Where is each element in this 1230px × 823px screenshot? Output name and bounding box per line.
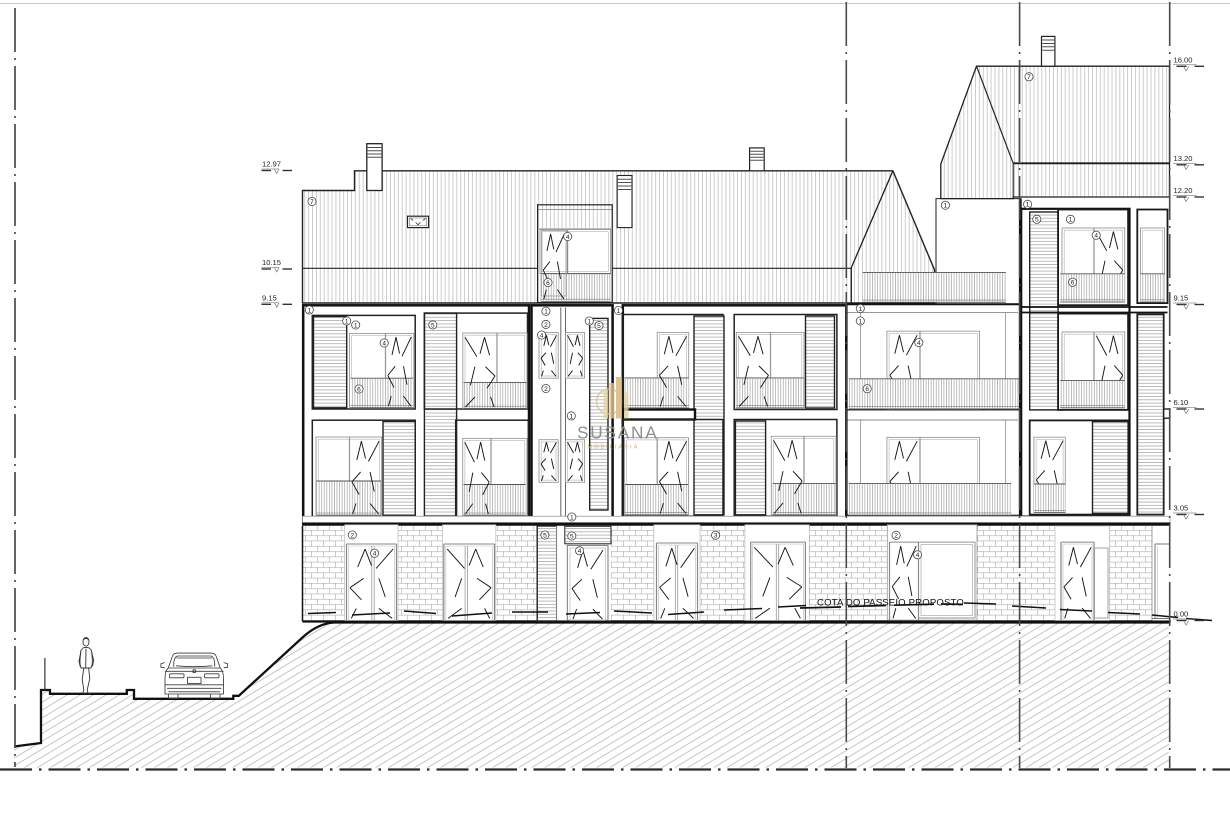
svg-text:2: 2 xyxy=(350,532,354,539)
svg-text:4: 4 xyxy=(540,332,544,339)
svg-text:9.15: 9.15 xyxy=(1174,294,1189,303)
svg-text:12.20: 12.20 xyxy=(1174,186,1193,195)
svg-text:1: 1 xyxy=(345,318,349,325)
svg-text:7: 7 xyxy=(310,199,314,206)
svg-text:16.00: 16.00 xyxy=(1174,55,1193,64)
svg-text:5: 5 xyxy=(431,322,435,329)
svg-text:1: 1 xyxy=(617,308,621,315)
svg-text:1: 1 xyxy=(544,309,548,316)
svg-text:4: 4 xyxy=(382,340,386,347)
svg-text:1: 1 xyxy=(944,203,948,210)
svg-text:4: 4 xyxy=(916,552,920,559)
svg-text:2: 2 xyxy=(544,322,548,329)
svg-text:4: 4 xyxy=(578,548,582,555)
svg-text:4: 4 xyxy=(373,551,377,558)
svg-text:2: 2 xyxy=(544,386,548,393)
svg-text:6: 6 xyxy=(865,386,869,393)
svg-text:5: 5 xyxy=(597,323,601,330)
svg-text:1: 1 xyxy=(858,306,862,313)
svg-text:13.20: 13.20 xyxy=(1174,154,1193,163)
svg-text:7: 7 xyxy=(1027,74,1031,81)
svg-text:0.00: 0.00 xyxy=(1174,610,1189,619)
svg-text:SUSANA: SUSANA xyxy=(577,423,658,443)
svg-text:4: 4 xyxy=(566,234,570,241)
svg-text:12.97: 12.97 xyxy=(262,160,281,169)
svg-text:6: 6 xyxy=(1071,280,1075,287)
svg-text:5: 5 xyxy=(1035,217,1039,224)
svg-text:3.05: 3.05 xyxy=(1174,504,1189,513)
svg-text:1: 1 xyxy=(570,514,574,521)
svg-text:5: 5 xyxy=(543,532,547,539)
svg-text:1: 1 xyxy=(587,318,591,325)
svg-text:9.15: 9.15 xyxy=(262,293,277,302)
svg-text:1: 1 xyxy=(1026,202,1030,209)
svg-text:4: 4 xyxy=(1094,233,1098,240)
svg-text:3: 3 xyxy=(714,533,718,540)
svg-text:1: 1 xyxy=(1069,217,1073,224)
svg-text:2: 2 xyxy=(894,533,898,540)
svg-text:1: 1 xyxy=(858,318,862,325)
svg-text:IMOBILIARIA: IMOBILIARIA xyxy=(584,444,639,450)
svg-text:5: 5 xyxy=(570,533,574,540)
svg-text:6: 6 xyxy=(357,386,361,393)
svg-text:6.10: 6.10 xyxy=(1174,398,1189,407)
svg-text:4: 4 xyxy=(917,340,921,347)
svg-text:6: 6 xyxy=(546,280,550,287)
svg-text:1: 1 xyxy=(569,413,573,420)
svg-text:10.15: 10.15 xyxy=(262,258,281,267)
svg-text:1: 1 xyxy=(307,307,311,314)
svg-text:1: 1 xyxy=(354,322,358,329)
